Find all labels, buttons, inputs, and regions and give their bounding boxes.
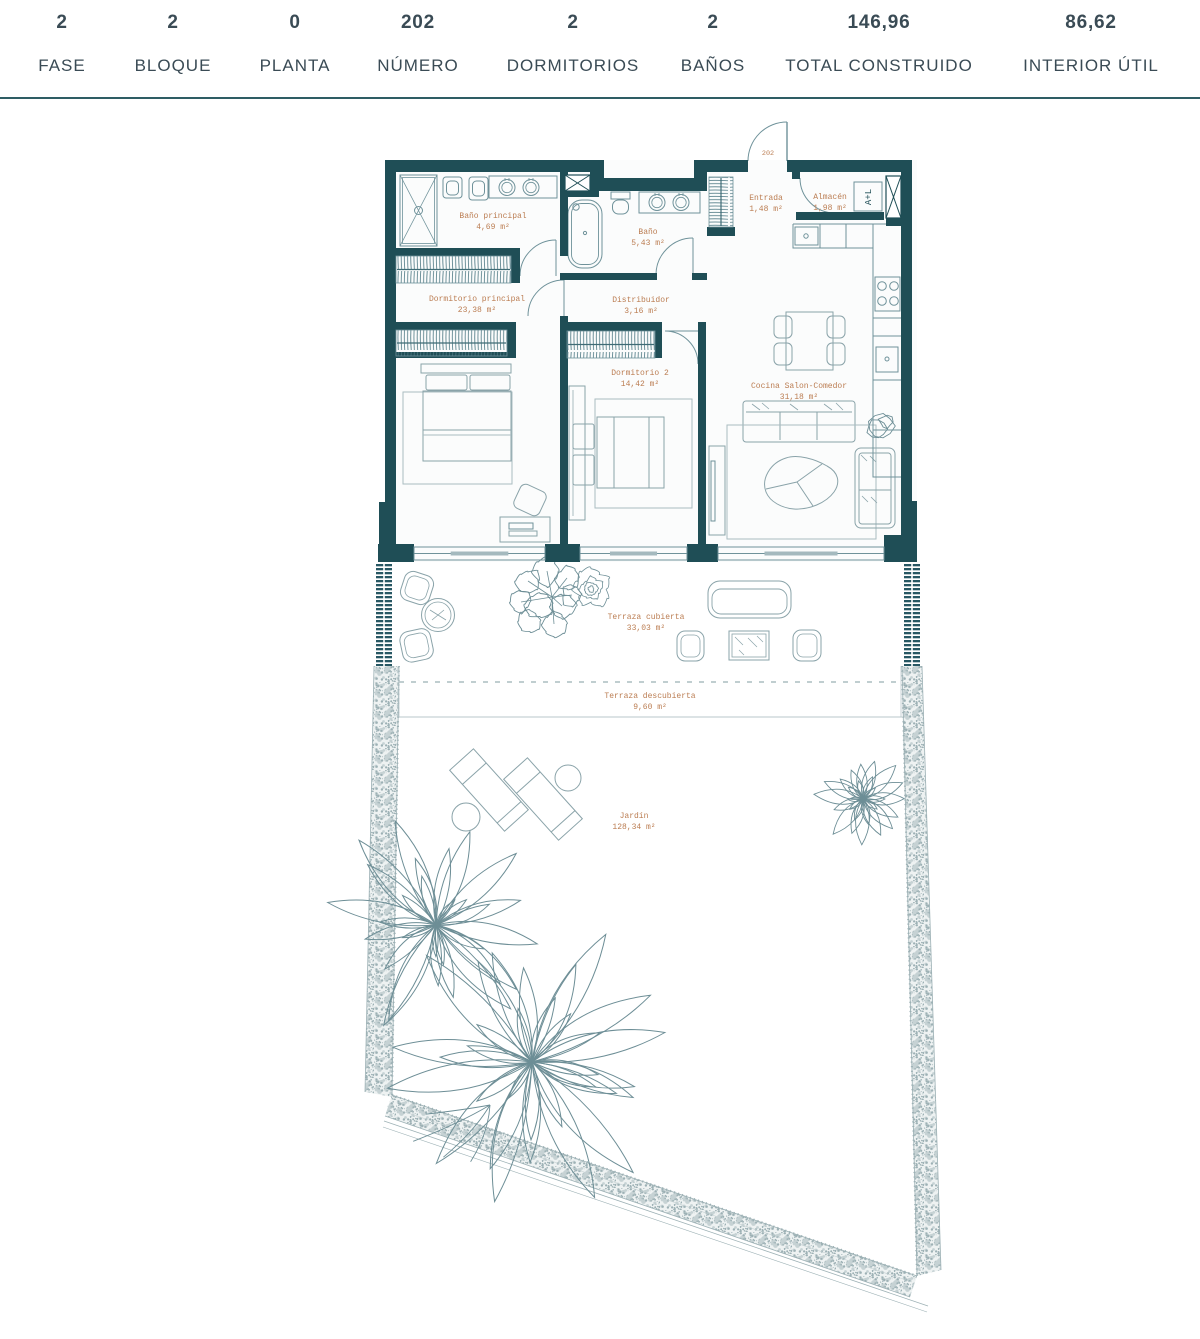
svg-text:Jardín: Jardín — [620, 812, 649, 821]
svg-text:Distribuidor: Distribuidor — [612, 296, 670, 305]
svg-text:Baño principal: Baño principal — [459, 212, 526, 221]
svg-text:202: 202 — [762, 150, 774, 158]
svg-text:14,42 m²: 14,42 m² — [621, 380, 659, 389]
svg-text:23,38 m²: 23,38 m² — [458, 306, 496, 315]
svg-text:33,03 m²: 33,03 m² — [627, 624, 665, 633]
svg-text:Dormitorio 2: Dormitorio 2 — [611, 369, 669, 378]
svg-text:Almacén: Almacén — [813, 193, 847, 202]
svg-text:Terraza cubierta: Terraza cubierta — [608, 613, 685, 622]
svg-text:Entrada: Entrada — [749, 194, 783, 203]
svg-text:A+L: A+L — [864, 189, 874, 205]
svg-text:4,69 m²: 4,69 m² — [476, 223, 510, 232]
svg-text:1,48 m²: 1,48 m² — [749, 205, 783, 214]
svg-text:1,98 m²: 1,98 m² — [813, 204, 847, 213]
svg-text:5,43 m²: 5,43 m² — [631, 239, 665, 248]
svg-text:3,16 m²: 3,16 m² — [624, 307, 658, 316]
svg-text:Terraza descubierta: Terraza descubierta — [604, 692, 695, 701]
svg-text:9,60 m²: 9,60 m² — [633, 703, 667, 712]
svg-text:Cocina Salon-Comedor: Cocina Salon-Comedor — [751, 382, 847, 391]
svg-text:128,34 m²: 128,34 m² — [612, 823, 655, 832]
svg-text:31,18 m²: 31,18 m² — [780, 393, 818, 402]
svg-text:Baño: Baño — [638, 228, 657, 237]
svg-text:Dormitorio principal: Dormitorio principal — [429, 295, 525, 304]
